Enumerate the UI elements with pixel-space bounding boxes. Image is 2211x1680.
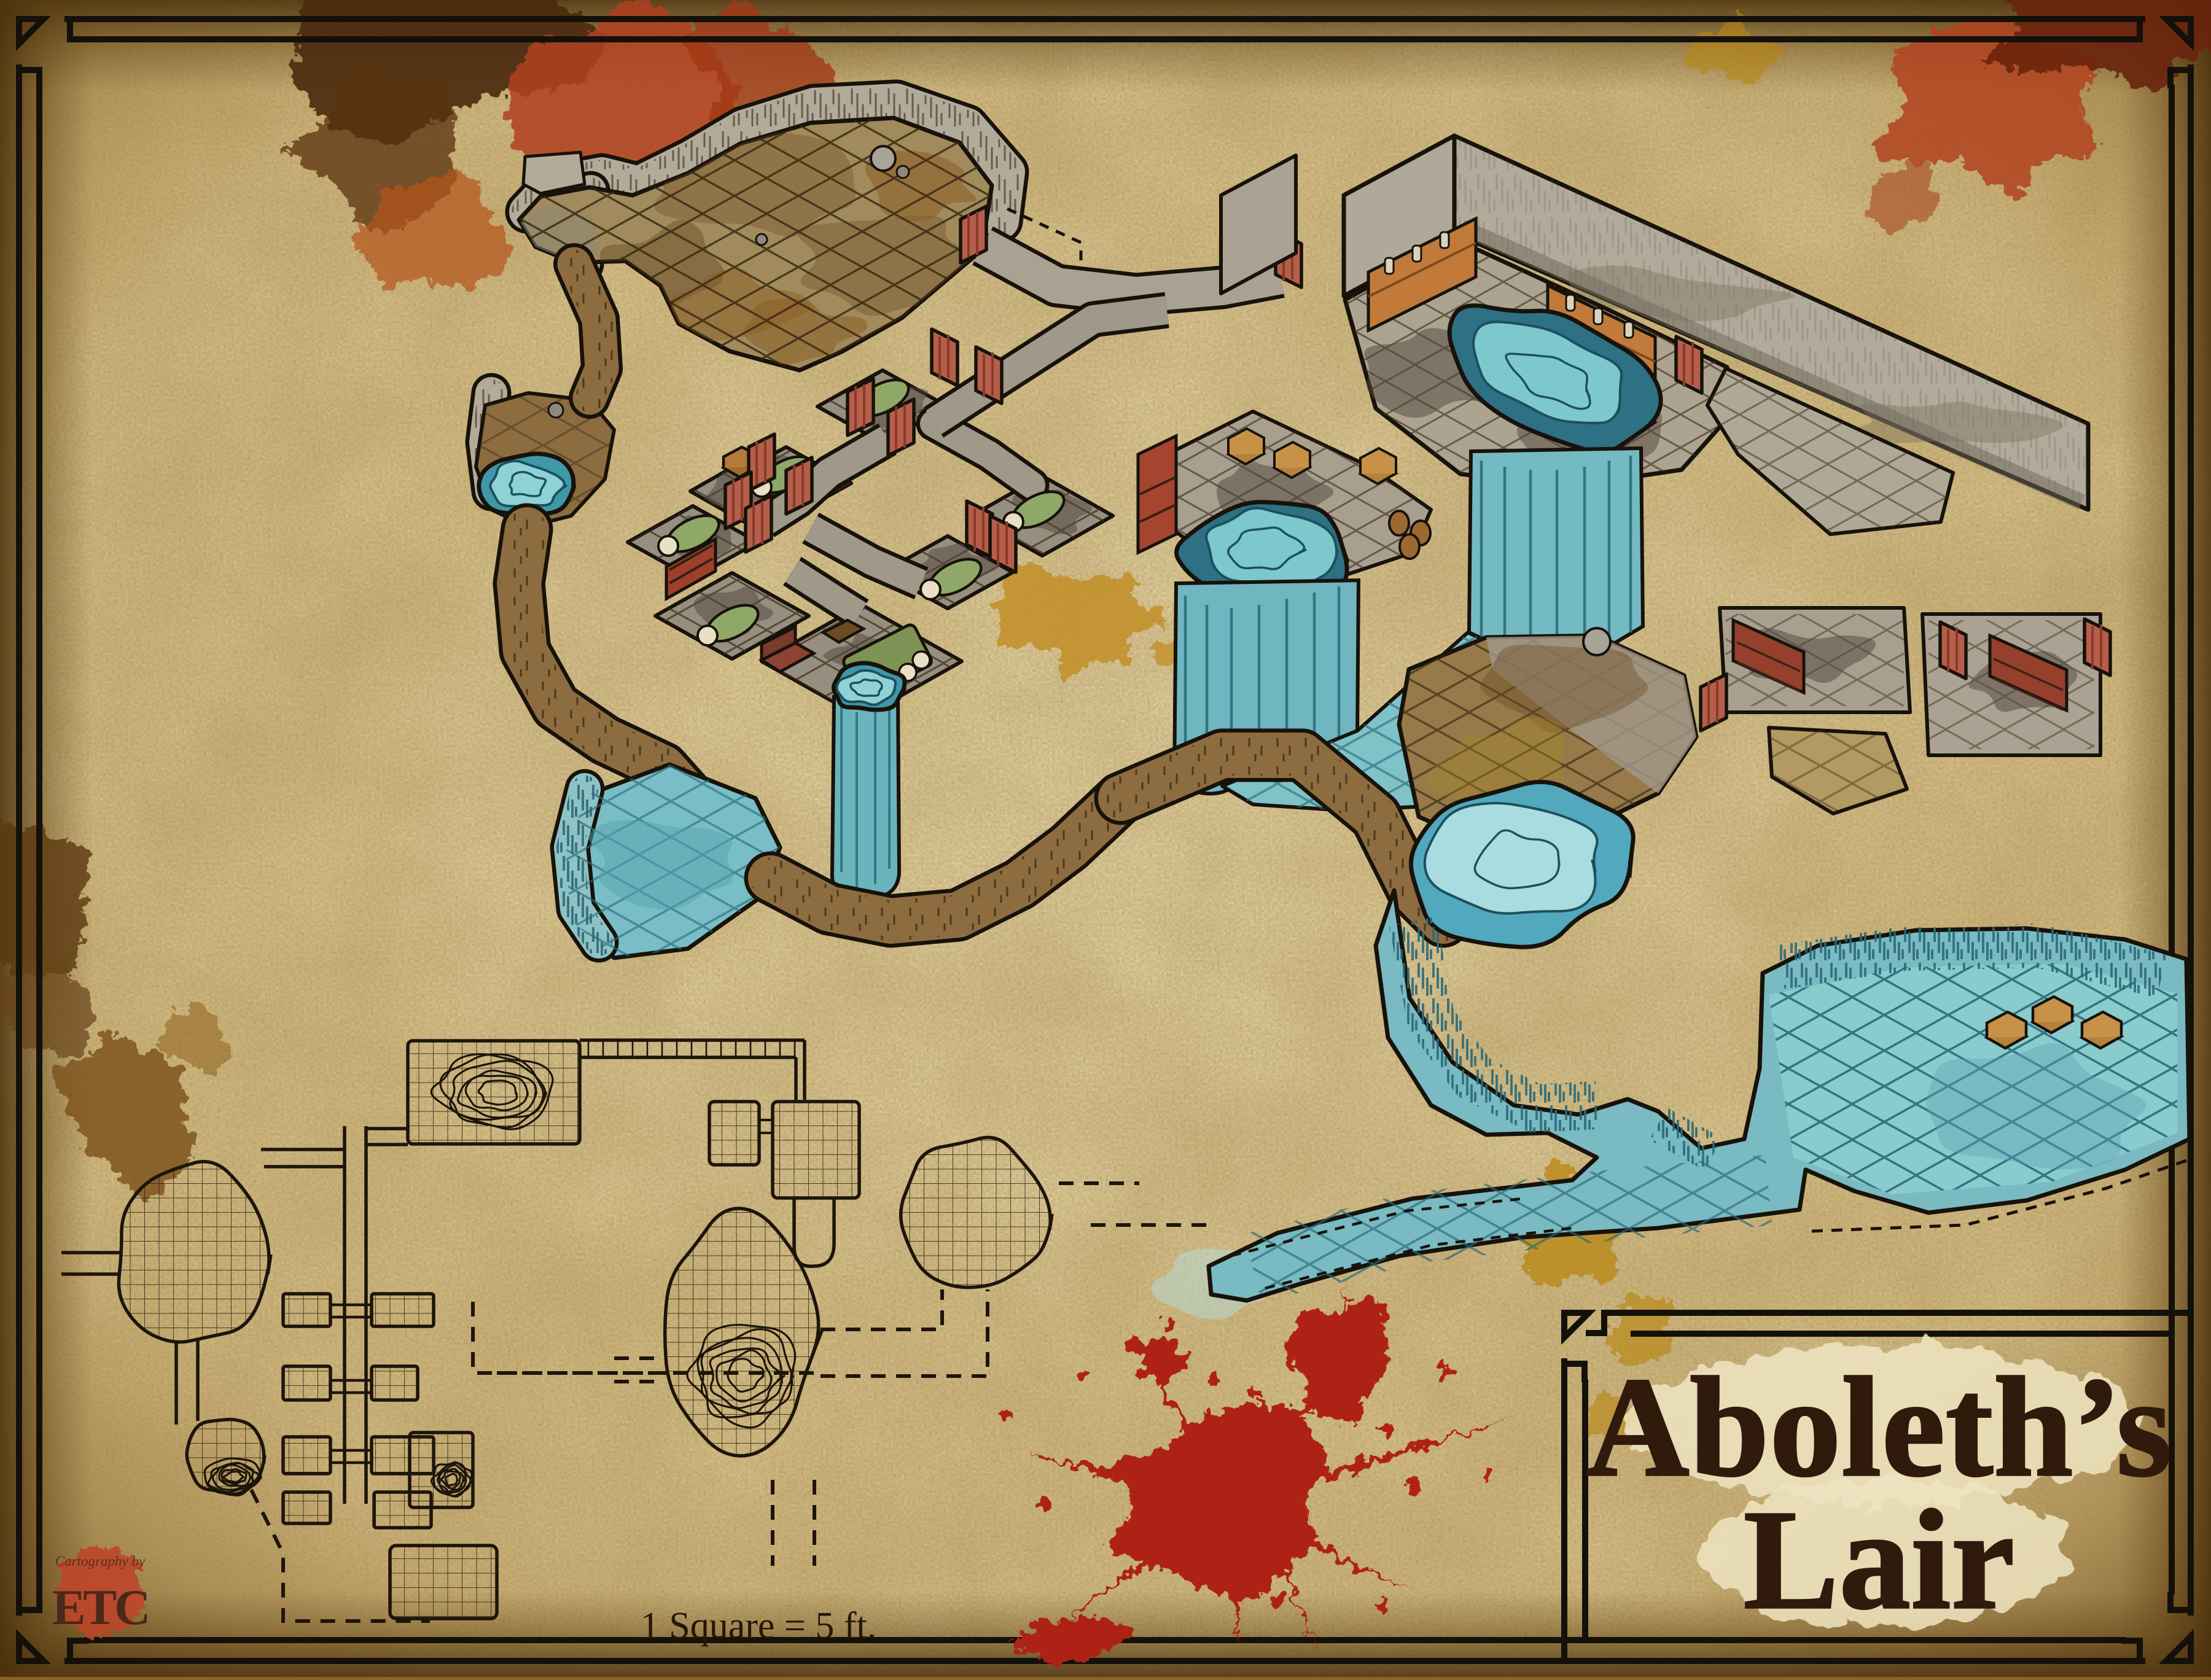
svg-text:1 Square = 5 ft.: 1 Square = 5 ft. (641, 1605, 877, 1647)
svg-text:Cartography by: Cartography by (55, 1554, 146, 1569)
svg-text:Lair: Lair (1744, 1481, 2015, 1639)
svg-text:ETC: ETC (52, 1579, 149, 1635)
